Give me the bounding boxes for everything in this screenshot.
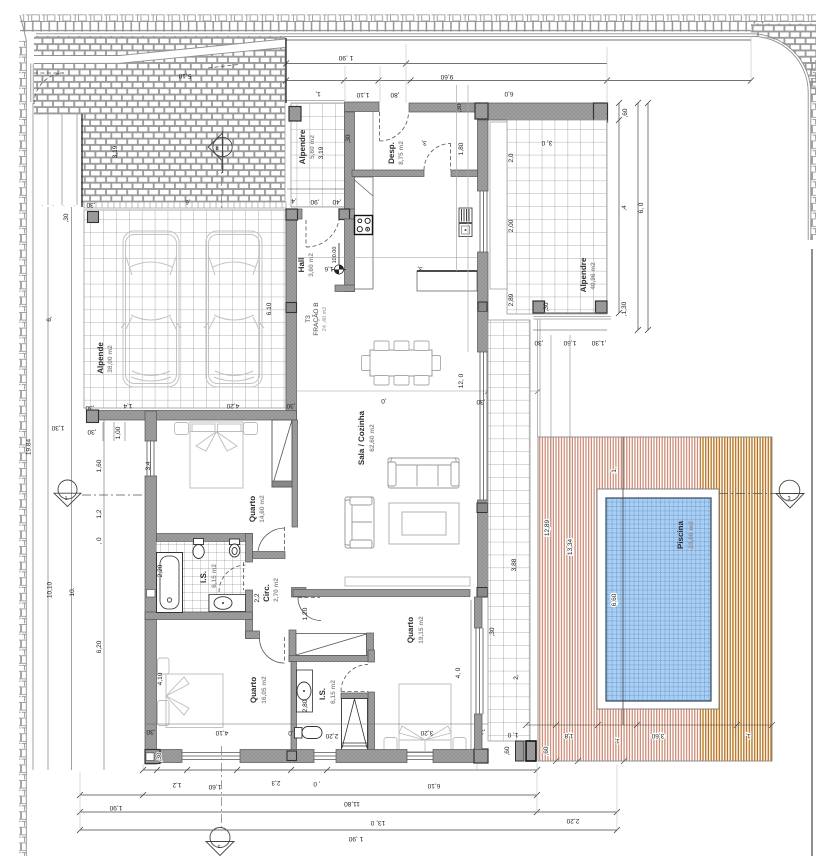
svg-text:10.: 10. <box>69 587 76 596</box>
svg-text:3,60: 3,60 <box>651 732 664 739</box>
svg-text:,1,30: ,1,30 <box>591 339 606 346</box>
svg-text:2,0: 2,0 <box>508 153 515 162</box>
svg-text:6,60: 6,60 <box>611 593 618 606</box>
svg-text:Alpendre: Alpendre <box>579 257 588 292</box>
svg-text:1,60: 1,60 <box>96 459 103 472</box>
svg-text:3,20: 3,20 <box>420 729 433 736</box>
svg-text:,30: ,30 <box>534 339 543 346</box>
svg-text:1,80: 1,80 <box>458 142 465 155</box>
svg-text:,30: ,30 <box>286 402 295 409</box>
svg-text:,60: ,60 <box>504 746 511 755</box>
svg-text:1, 0: 1, 0 <box>507 731 518 738</box>
svg-text:1,20: 1,20 <box>302 607 309 620</box>
svg-text:3,19: 3,19 <box>318 146 325 159</box>
svg-text:12, 0: 12, 0 <box>458 373 465 388</box>
svg-text:1,4: 1,4 <box>123 402 132 409</box>
svg-text:6,10: 6,10 <box>427 782 440 789</box>
svg-text:,30: ,30 <box>489 627 496 636</box>
svg-text:2,20: 2,20 <box>566 817 579 824</box>
svg-text:1,30: 1,30 <box>51 424 64 431</box>
svg-text:I.S.: I.S. <box>199 571 208 583</box>
svg-text:2,20: 2,20 <box>325 732 338 739</box>
svg-text:,0: ,0 <box>288 729 294 736</box>
svg-text:1,00: 1,00 <box>115 426 122 439</box>
svg-text:2,89: 2,89 <box>508 293 515 306</box>
svg-text:11,80: 11,80 <box>344 800 360 807</box>
svg-text:2,20: 2,20 <box>157 564 164 577</box>
svg-text:Sala / Cozinha: Sala / Cozinha <box>357 410 366 465</box>
svg-text:6.10: 6.10 <box>266 302 273 315</box>
svg-text:2,3: 2,3 <box>271 779 280 786</box>
svg-text:23,80 m2: 23,80 m2 <box>688 521 695 549</box>
svg-text:13,34: 13,34 <box>567 538 574 555</box>
svg-text:,30: ,30 <box>85 404 94 411</box>
svg-text:8,75 m2: 8,75 m2 <box>398 141 405 165</box>
svg-text:FRAÇÃO B: FRAÇÃO B <box>312 302 320 335</box>
svg-text:,6: ,6 <box>185 198 191 205</box>
svg-text:,1,30: ,1,30 <box>621 301 628 316</box>
svg-text:10,10: 10,10 <box>47 581 54 598</box>
svg-text:,0: ,0 <box>381 397 387 404</box>
svg-text:1 ,90: 1 ,90 <box>338 54 353 61</box>
svg-text:3, 0: 3, 0 <box>541 139 552 146</box>
svg-text:40,96 m2: 40,96 m2 <box>590 262 597 290</box>
svg-text:6,20: 6,20 <box>96 640 103 653</box>
svg-text:14,60 m2: 14,60 m2 <box>259 495 266 523</box>
svg-text:5,60 m2: 5,60 m2 <box>309 135 316 159</box>
svg-text:Circ.: Circ. <box>262 584 271 602</box>
svg-text:Desp.: Desp. <box>387 142 396 164</box>
svg-text:4,10: 4,10 <box>157 672 164 685</box>
svg-text:38,00 m2: 38,00 m2 <box>107 345 114 373</box>
svg-text:,30: ,30 <box>456 103 463 112</box>
svg-text:9,60: 9,60 <box>440 73 453 80</box>
svg-text:,80: ,80 <box>390 91 399 98</box>
svg-text:24 ,40 m2: 24 ,40 m2 <box>322 307 328 331</box>
svg-text:Alpendre: Alpendre <box>298 129 307 164</box>
svg-text:,30: ,30 <box>345 134 352 143</box>
svg-text:1,: 1, <box>315 90 321 97</box>
svg-text:2,70 m2: 2,70 m2 <box>273 578 280 602</box>
svg-text:,4: ,4 <box>621 205 628 211</box>
svg-text:62,60 m2: 62,60 m2 <box>369 424 376 452</box>
svg-text:,30: ,30 <box>146 728 155 735</box>
svg-text:6,15 m2: 6,15 m2 <box>211 564 218 588</box>
svg-text:1,60: 1,60 <box>208 783 221 790</box>
svg-text:,30: ,30 <box>543 302 550 311</box>
svg-text:Alpende: Alpende <box>96 342 105 374</box>
svg-text:1 ,90: 1 ,90 <box>348 835 363 842</box>
svg-text:1,: 1, <box>745 732 751 739</box>
svg-text:1,2: 1,2 <box>96 509 103 518</box>
svg-text:4,20: 4,20 <box>226 402 239 409</box>
svg-text:2,80: 2,80 <box>302 699 309 712</box>
svg-text:,30: ,30 <box>86 201 95 208</box>
svg-text:6,0: 6,0 <box>504 90 513 97</box>
svg-text:,30: ,30 <box>476 398 485 405</box>
svg-text:4, 0: 4, 0 <box>455 667 462 678</box>
svg-text:3,: 3, <box>417 265 423 272</box>
svg-text:100.00: 100.00 <box>332 247 338 264</box>
svg-text:,40: ,40 <box>332 198 341 205</box>
svg-text:3,88: 3,88 <box>511 558 518 571</box>
svg-text:12,89: 12,89 <box>544 519 551 536</box>
svg-text:Quarto: Quarto <box>406 617 415 643</box>
svg-text:Hall: Hall <box>297 258 306 273</box>
svg-text:2,2: 2,2 <box>254 593 261 602</box>
svg-text:19,15 m2: 19,15 m2 <box>418 616 425 644</box>
svg-text:3: 3 <box>787 496 790 502</box>
svg-text:,30: ,30 <box>156 752 163 761</box>
svg-text:3,: 3, <box>421 139 427 146</box>
svg-text:6,: 6, <box>46 316 53 322</box>
svg-text:16,05 m2: 16,05 m2 <box>261 676 268 704</box>
svg-text:,90: ,90 <box>310 198 319 205</box>
svg-text:2,00: 2,00 <box>508 219 515 232</box>
svg-text:T3: T3 <box>305 315 312 323</box>
svg-text:c: c <box>218 844 221 850</box>
svg-text:Piscina: Piscina <box>676 520 685 549</box>
svg-text:I.S.: I.S. <box>318 688 327 700</box>
svg-text:1,90: 1,90 <box>109 804 122 811</box>
svg-text:3,60 m2: 3,60 m2 <box>308 253 315 277</box>
svg-text:19.84: 19.84 <box>26 438 33 455</box>
svg-text:1,: 1, <box>614 737 620 744</box>
svg-text:3,19: 3,19 <box>112 145 119 158</box>
svg-text:5,10: 5,10 <box>178 72 191 79</box>
svg-text:,4: ,4 <box>291 197 297 204</box>
svg-text:3,4: 3,4 <box>145 461 152 470</box>
svg-text:1,2: 1,2 <box>172 781 181 788</box>
svg-text:,60: ,60 <box>543 746 550 755</box>
svg-text:6, 0: 6, 0 <box>638 202 645 213</box>
svg-text:1,8: 1,8 <box>564 732 573 739</box>
svg-text:Quarto: Quarto <box>248 496 257 522</box>
svg-text:13, 0: 13, 0 <box>370 819 385 826</box>
svg-text:1,10: 1,10 <box>356 91 369 98</box>
svg-text:, 0: , 0 <box>96 537 103 545</box>
svg-text:,60: ,60 <box>622 108 629 117</box>
svg-text:2,: 2, <box>513 674 520 680</box>
svg-text:1,: 1, <box>611 467 618 473</box>
svg-text:1,6: 1,6 <box>324 265 333 272</box>
svg-text:,30: ,30 <box>63 213 70 222</box>
svg-text:4,10: 4,10 <box>215 729 228 736</box>
svg-text:6,15 m2: 6,15 m2 <box>330 680 337 704</box>
svg-text:1: 1 <box>64 496 67 502</box>
svg-text:Quarto: Quarto <box>249 677 258 703</box>
svg-text:, 0: , 0 <box>313 780 321 787</box>
svg-text:,30: ,30 <box>87 428 96 435</box>
svg-text:b: b <box>215 146 218 152</box>
